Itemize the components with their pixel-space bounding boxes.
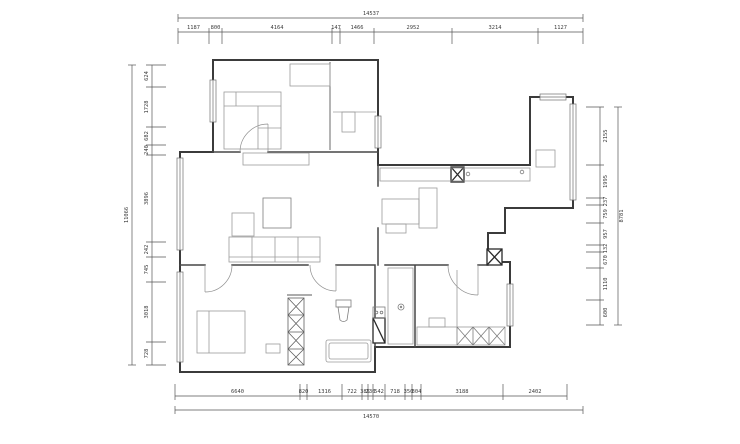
dim-label: 1728: [144, 101, 150, 114]
dim-label: 304: [412, 389, 422, 395]
dim-label: 542: [374, 389, 384, 395]
dim-label: 1110: [603, 278, 609, 291]
living-sofa: [229, 237, 320, 262]
dim-total-label: 14570: [363, 414, 379, 420]
dim-label: 3214: [489, 25, 502, 31]
living-coffee-table: [263, 198, 291, 228]
floor-plan-canvas: 1187800416414714662952321411271453766408…: [0, 0, 740, 444]
dim-label: 745: [144, 265, 150, 275]
dim-label: 1316: [318, 389, 331, 395]
dim-label: 759: [603, 209, 609, 219]
dim-label: 728: [144, 349, 150, 359]
bathroom-toilet: [336, 300, 351, 322]
dim-label: 682: [144, 131, 150, 141]
dim-label: 4164: [271, 25, 284, 31]
dim-label: 132: [603, 244, 609, 254]
living-tv-cabinet: [243, 153, 309, 165]
dim-label: 6640: [231, 389, 244, 395]
dim-label: 957: [603, 229, 609, 239]
dim-label: 1127: [554, 25, 567, 31]
bedroom1-bed: [224, 92, 281, 149]
dim-label: 237: [603, 197, 609, 207]
dim-label: 718: [390, 389, 400, 395]
dim-label: 3896: [144, 192, 150, 205]
dim-label: 3188: [456, 389, 469, 395]
dim-label: 600: [603, 308, 609, 318]
dim-label: 3018: [144, 306, 150, 319]
dim-label: 2952: [407, 25, 420, 31]
dim-label: 240: [144, 145, 150, 155]
dim-label: 1995: [603, 175, 609, 188]
dim-label: 242: [144, 245, 150, 255]
kitchen-counter: [417, 270, 505, 345]
column-symbol: [487, 249, 502, 265]
dim-label: 722: [347, 389, 357, 395]
dim-label: 1187: [187, 25, 200, 31]
study-desk: [382, 188, 437, 233]
dim-label: 2155: [603, 130, 609, 143]
column-symbol: [451, 167, 464, 182]
balcony-cabinet: [536, 150, 555, 167]
dim-label: 624: [144, 71, 150, 81]
dim-label: 800: [211, 25, 221, 31]
bedroom1-wardrobe: [290, 64, 376, 132]
floor-plan-drawing: 1187800416414714662952321411271453766408…: [0, 0, 740, 444]
dim-label: 147: [331, 25, 341, 31]
bathroom-tub: [326, 340, 371, 362]
interior-walls: [180, 62, 488, 347]
dim-label: 820: [299, 389, 309, 395]
living-armchair: [232, 213, 254, 236]
dim-total-label: 11066: [124, 207, 130, 223]
bedroom2-bed: [197, 311, 280, 353]
dim-total-label: 8781: [619, 210, 625, 223]
dim-total-label: 14537: [363, 11, 379, 17]
hatched-shaft-wall: [288, 298, 304, 365]
dim-label: 1466: [351, 25, 364, 31]
dim-label: 670: [603, 255, 609, 265]
dim-label: 2402: [529, 389, 542, 395]
laundry-counter: [388, 268, 445, 344]
